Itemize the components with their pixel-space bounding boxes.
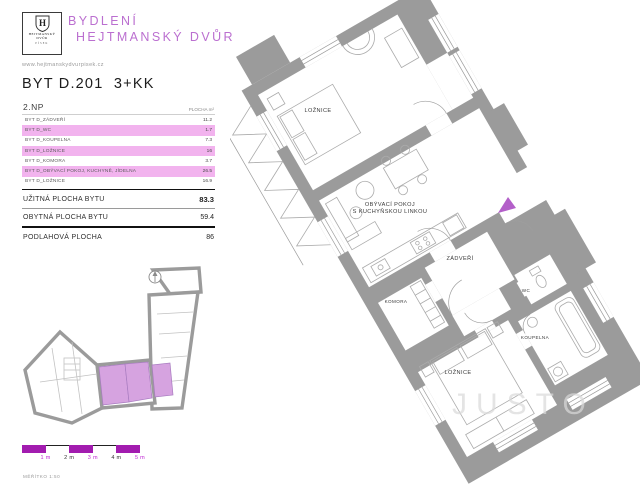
label-living-line2: S KUCHYŇSKOU LINKOU [353, 208, 428, 215]
brand-line2: HEJTMANSKÝ DVŮR [76, 29, 235, 45]
room-area-value: 3.7 [205, 159, 212, 164]
area-unit-header: PLOCHA m² [189, 107, 214, 112]
building-overview-plan [12, 262, 227, 457]
room-area-value: 26.5 [203, 169, 212, 174]
scale-segment [93, 445, 117, 453]
summary-label: OBYTNÁ PLOCHA BYTU [23, 214, 108, 221]
scale-bar [22, 445, 140, 453]
brand-title: BYDLENÍ HEJTMANSKÝ DVŮR [68, 13, 235, 45]
room-area-value: 11.2 [203, 118, 212, 123]
logo: H HEJTMANSKÝ DVŮR PÍSEK [22, 12, 62, 55]
area-table-row: BYT D_KOUPELNA7.3 [22, 136, 215, 146]
room-area-value: 16.9 [203, 179, 212, 184]
scale-labels: 1 m2 m3 m4 m5 m [22, 455, 152, 465]
area-table-row: BYT D_LOŽNICE16.9 [22, 177, 215, 187]
area-table-rows: BYT D_ZÁDVEŘÍ11.2BYT D_WC1.7BYT D_KOUPEL… [22, 115, 215, 187]
label-living-line1: OBÝVACÍ POKOJ [365, 201, 415, 208]
scale-label: 1 m [41, 455, 51, 461]
watermark: JUSTO [452, 388, 595, 422]
scale-label: 5 m [135, 455, 145, 461]
room-name: BYT D_KOMORA [25, 159, 65, 164]
area-table-header: 2.NP PLOCHA m² [22, 101, 215, 115]
logo-city: PÍSEK [35, 42, 48, 45]
floorplan-sheet: H HEJTMANSKÝ DVŮR PÍSEK BYDLENÍ HEJTMANS… [0, 0, 640, 489]
logo-name-line2: DVŮR [36, 36, 47, 40]
label-wc: WC [522, 288, 531, 293]
summary-value: 86 [206, 234, 214, 241]
scale-segment [116, 445, 140, 453]
area-table: 2.NP PLOCHA m² BYT D_ZÁDVEŘÍ11.2BYT D_WC… [22, 101, 215, 247]
room-name: BYT D_KOUPELNA [25, 138, 71, 143]
room-area-value: 7.3 [205, 138, 212, 143]
north-arrow-icon [149, 271, 161, 283]
label-bedroom-bottom: LOŽNICE [444, 368, 471, 376]
area-table-row: BYT D_OBÝVACÍ POKOJ, KUCHYNĚ, JÍDELNA26.… [22, 166, 215, 176]
summary-row: PODLAHOVÁ PLOCHA86 [22, 226, 215, 247]
scale-segment [22, 445, 46, 453]
area-table-row: BYT D_LOŽNICE16 [22, 146, 215, 156]
scale-segment [46, 445, 70, 453]
room-area-value: 16 [207, 149, 212, 154]
summary-value: 83.3 [199, 195, 214, 204]
room-name: BYT D_WC [25, 128, 51, 133]
room-name: BYT D_LOŽNICE [25, 149, 65, 154]
scale-caption: MĚŘÍTKO 1:50 [23, 474, 60, 479]
label-bathroom: KOUPELNA [521, 335, 550, 340]
label-bedroom-top: LOŽNICE [304, 106, 331, 114]
area-table-row: BYT D_ZÁDVEŘÍ11.2 [22, 115, 215, 125]
scale-label: 4 m [111, 455, 121, 461]
scale-label: 3 m [88, 455, 98, 461]
shield-icon: H [35, 15, 50, 32]
summary-value: 59.4 [200, 214, 214, 221]
summary-label: PODLAHOVÁ PLOCHA [23, 234, 102, 241]
website-url: www.hejtmanskydvurpisek.cz [22, 62, 104, 68]
label-hall: ZÁDVEŘÍ [446, 254, 473, 262]
area-table-row: BYT D_WC1.7 [22, 125, 215, 135]
scale-label: 2 m [64, 455, 74, 461]
room-name: BYT D_ZÁDVEŘÍ [25, 118, 65, 123]
room-name: BYT D_OBÝVACÍ POKOJ, KUCHYNĚ, JÍDELNA [25, 169, 136, 174]
area-table-summary: UŽITNÁ PLOCHA BYTU83.3OBYTNÁ PLOCHA BYTU… [22, 189, 215, 247]
brand-line1: BYDLENÍ [68, 13, 235, 29]
unit-title: BYT D.201 3+KK [22, 76, 155, 92]
logo-monogram: H [38, 18, 45, 28]
summary-row: OBYTNÁ PLOCHA BYTU59.4 [22, 208, 215, 226]
floor-label: 2.NP [23, 102, 44, 112]
label-closet: KOMORA [385, 299, 408, 304]
room-name: BYT D_LOŽNICE [25, 179, 65, 184]
summary-label: UŽITNÁ PLOCHA BYTU [23, 196, 105, 203]
room-area-value: 1.7 [205, 128, 212, 133]
summary-row: UŽITNÁ PLOCHA BYTU83.3 [22, 189, 215, 208]
scale-segment [69, 445, 93, 453]
area-table-row: BYT D_KOMORA3.7 [22, 156, 215, 166]
